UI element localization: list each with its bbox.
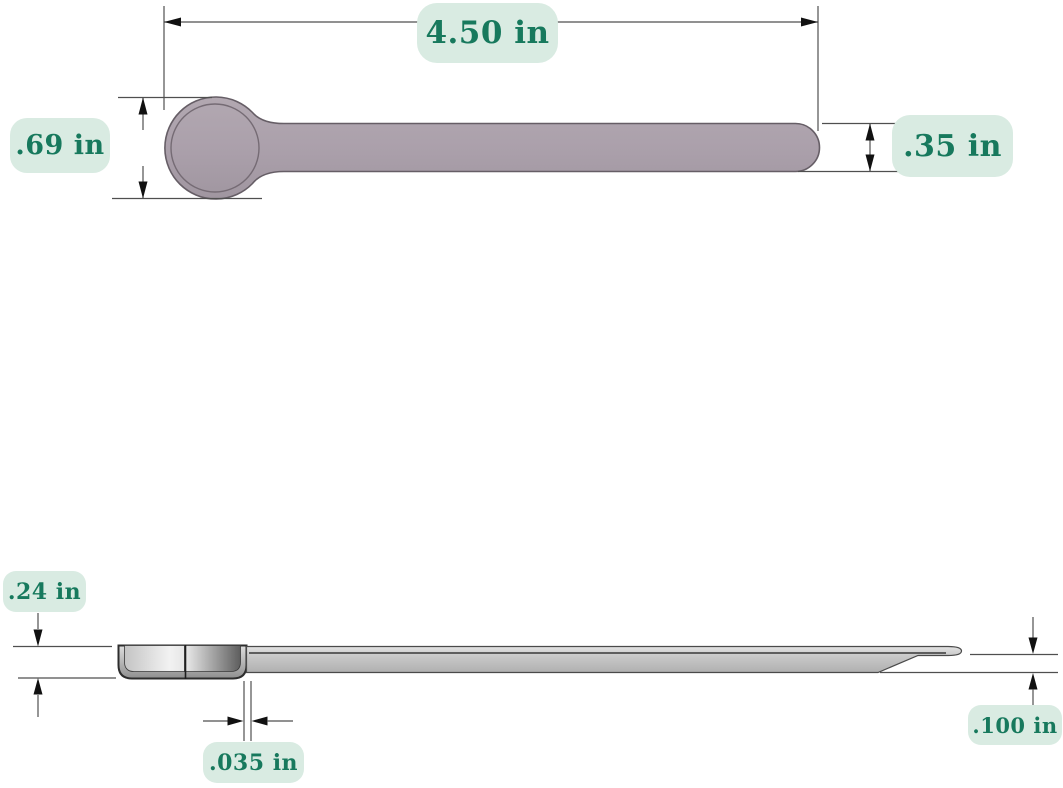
scoop-body-top-view <box>165 97 820 199</box>
bowl-cavity-left <box>125 646 185 672</box>
arrowhead-down <box>34 630 43 647</box>
dim-head-depth-lines <box>13 613 116 717</box>
dim-wall-thickness-lines <box>203 681 293 741</box>
arrowhead-down <box>1029 638 1038 655</box>
bowl-cavity-right <box>185 646 241 672</box>
arrowhead-up <box>866 124 875 141</box>
dim-handle-thickness-lines <box>880 617 1058 707</box>
arrowhead-left <box>252 717 268 726</box>
arrowhead-right <box>801 18 818 27</box>
arrowhead-up <box>139 98 148 115</box>
handle-side-profile <box>247 647 962 673</box>
arrowhead-right <box>228 717 244 726</box>
dimension-label-overall-length: 4.50 in <box>417 3 558 63</box>
arrowhead-left <box>164 18 181 27</box>
dimension-drawing-canvas: 4.50 in .69 in .35 in .24 in .035 in .10… <box>0 0 1063 788</box>
side-view <box>13 613 1058 741</box>
dimension-label-head-depth: .24 in <box>3 571 86 612</box>
arrowhead-down <box>139 182 148 199</box>
dimension-label-wall-thickness: .035 in <box>203 742 304 783</box>
dimension-label-head-diameter: .69 in <box>10 118 110 173</box>
arrowhead-up <box>1029 673 1038 690</box>
arrowhead-up <box>34 678 43 695</box>
dimension-label-handle-thickness: .100 in <box>968 705 1062 745</box>
dimension-label-handle-width: .35 in <box>892 115 1013 177</box>
arrowhead-down <box>866 155 875 172</box>
